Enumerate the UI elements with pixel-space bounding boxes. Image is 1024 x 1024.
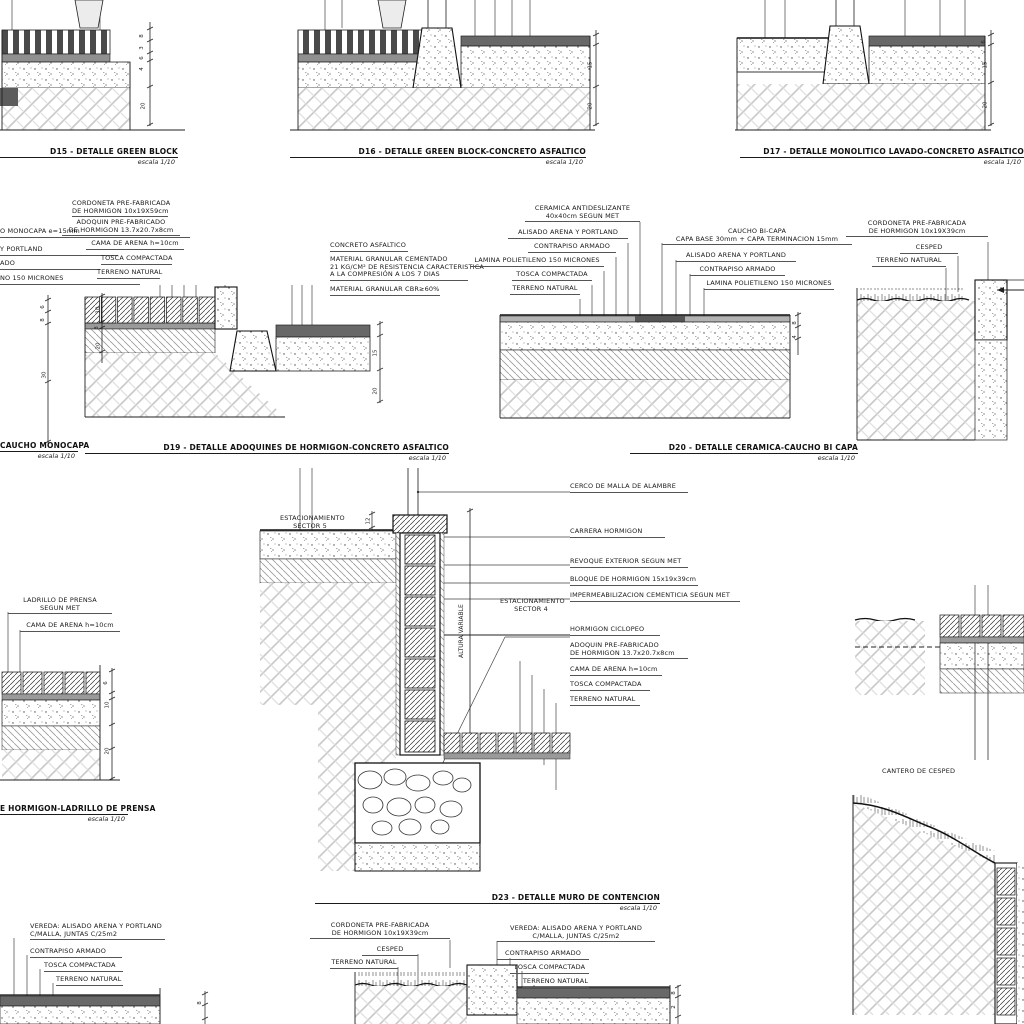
d20-label-contrapiso-izq: CONTRAPISO ARMADO	[528, 243, 616, 253]
d19-label-concreto-asfaltico: CONCRETO ASFALTICO	[330, 242, 408, 252]
detail-scale: escala 1/10	[0, 815, 128, 823]
label-line: SEGUN MET	[8, 605, 112, 613]
d16-title-block: D16 - DETALLE GREEN BLOCK-CONCRETO ASFAL…	[290, 147, 586, 166]
detail-scale: escala 1/10	[740, 158, 1024, 166]
label-line: DE HORMIGON 10x19X59cm	[72, 208, 168, 216]
d18-label-armado: ADO	[0, 260, 100, 270]
label-line: 40x40cm SEGUN MET	[525, 213, 640, 221]
vereda-centro-drawing	[280, 940, 700, 1024]
label-line: C/MALLA, JUNTAS C/25m2	[497, 933, 655, 941]
d15-drawing	[0, 0, 190, 140]
vc-label-cordoneta: CORDONETA PRE-FABRICADA DE HORMIGON 10x1…	[310, 922, 450, 939]
construction-details-sheet: 8 3 6 4 20 D15 - DETALLE GREEN BLOCK esc…	[0, 0, 1024, 1024]
detail-title: E HORMIGON-LADRILLO DE PRENSA	[0, 804, 128, 815]
d23-label-terreno: TERRENO NATURAL	[570, 696, 640, 706]
d23-label-tosca: TOSCA COMPACTADA	[570, 681, 650, 691]
detail-scale: escala 1/10	[0, 452, 78, 460]
d23-label-adoquin: ADOQUIN PRE-FABRICADO DE HORMIGON 13.7x2…	[570, 642, 688, 659]
detail-title: D20 - DETALLE CERAMICA-CAUCHO BI CAPA	[630, 443, 858, 454]
dim-label: 8	[40, 318, 46, 322]
dim-label: 4	[792, 335, 798, 339]
dim-label: 20	[96, 343, 102, 350]
d23-label-sector4: ESTACIONAMIENTO SECTOR 4	[500, 598, 562, 613]
vc-label-terreno2: TERRENO NATURAL	[522, 978, 589, 988]
label-line: CAPA BASE 30mm + CAPA TERMINACION 15mm	[662, 236, 852, 244]
d23-label-ciclopeo: HORMIGON CICLOPEO	[570, 626, 660, 636]
d17-title-block: D17 - DETALLE MONOLITICO LAVADO-CONCRETO…	[740, 147, 1024, 166]
vi-label-contrapiso: CONTRAPISO ARMADO	[30, 948, 122, 958]
d23-label-cama: CAMA DE ARENA h=10cm	[570, 666, 662, 676]
dim-label: 30	[42, 372, 48, 379]
detail-title: CAUCHO MONOCAPA	[0, 441, 78, 452]
detail-title: D16 - DETALLE GREEN BLOCK-CONCRETO ASFAL…	[290, 147, 586, 158]
dim-label: 20	[983, 102, 989, 109]
dim-label: 20	[373, 388, 379, 395]
dim-label: 6	[981, 40, 987, 44]
dim-label: 8	[197, 1001, 203, 1005]
detail-scale: escala 1/10	[0, 158, 178, 166]
dim-label: 15	[983, 62, 989, 69]
label-line: DE HORMIGON 13.7x20.7x8cm	[62, 227, 180, 235]
dim-label: 15	[373, 350, 379, 357]
d18-title-block: CAUCHO MONOCAPA escala 1/10	[0, 441, 78, 460]
dim-label: 6	[103, 681, 109, 685]
dim-label: 2	[671, 1005, 677, 1009]
d23-label-impermeabilizacion: IMPERMEABILIZACION CEMENTICIA SEGUN MET	[570, 592, 740, 602]
d20-drawing	[460, 220, 860, 435]
dim-label: 15	[588, 62, 594, 69]
d20-title-block: D20 - DETALLE CERAMICA-CAUCHO BI CAPA es…	[630, 443, 858, 462]
vi-label-terreno: TERRENO NATURAL	[56, 976, 123, 986]
borde-label-cesped: CESPED	[900, 244, 958, 254]
d15-title-block: D15 - DETALLE GREEN BLOCK escala 1/10	[0, 147, 178, 166]
bottom-right-fragment-drawing	[855, 585, 1024, 760]
d19-label-cama: CAMA DE ARENA h=10cm	[86, 240, 184, 250]
d20-label-lamina-izq: LAMINA POLIETILENO 150 MICRONES	[470, 257, 604, 267]
detail-scale: escala 1/10	[315, 904, 660, 912]
borde-label-cordoneta: CORDONETA PRE-FABRICADA DE HORMIGON 10x1…	[846, 220, 988, 237]
dim-label: 10	[96, 307, 102, 314]
d19-drawing	[40, 285, 480, 465]
cantero-drawing	[845, 755, 1024, 1024]
dim-label: 8	[139, 34, 145, 38]
d20-label-lamina-der: LAMINA POLIETILENO 150 MICRONES	[704, 280, 834, 290]
vc-label-cesped: CESPED	[362, 946, 418, 956]
d23-label-carrera: CARRERA HORMIGON	[570, 528, 665, 538]
dim-label: 20	[105, 748, 111, 755]
dim-label: 3	[139, 46, 145, 50]
d20-label-contrapiso-der: CONTRAPISO ARMADO	[690, 266, 785, 276]
vc-label-contrapiso: CONTRAPISO ARMADO	[497, 950, 589, 960]
d19-label-terreno: TERRENO NATURAL	[97, 269, 160, 279]
d20-label-caucho-bicapa: CAUCHO BI-CAPA CAPA BASE 30mm + CAPA TER…	[662, 228, 852, 245]
vc-label-vereda: VEREDA: ALISADO ARENA Y PORTLAND C/MALLA…	[497, 925, 655, 942]
vc-label-tosca: TOSCA COMPACTADA	[510, 964, 589, 974]
borde-label-terreno: TERRENO NATURAL	[872, 257, 946, 267]
detail-scale: escala 1/10	[290, 158, 586, 166]
d19-label-adoquin: ADOQUIN PRE-FABRICADO DE HORMIGON 13.7x2…	[62, 219, 180, 236]
label-line: DE HORMIGON 10x19X39cm	[310, 930, 450, 938]
d23-label-revoque: REVOQUE EXTERIOR SEGUN MET	[570, 558, 688, 568]
d21-label-cama: CAMA DE ARENA h=10cm	[20, 622, 120, 632]
d20-label-alisado-izq: ALISADO ARENA Y PORTLAND	[508, 229, 628, 239]
d23-title-block: D23 - DETALLE MURO DE CONTENCION escala …	[315, 893, 660, 912]
detail-title: D17 - DETALLE MONOLITICO LAVADO-CONCRETO…	[740, 147, 1024, 158]
detail-title: D23 - DETALLE MURO DE CONTENCION	[315, 893, 660, 904]
label-line: SECTOR 4	[500, 606, 562, 614]
dim-label: 20	[588, 103, 594, 110]
d20-label-tosca: TOSCA COMPACTADA	[512, 271, 592, 281]
d19-title-block: D19 - DETALLE ADOQUINES DE HORMIGON-CONC…	[85, 443, 449, 462]
d23-label-cerco: CERCO DE MALLA DE ALAMBRE	[570, 483, 688, 493]
vi-label-vereda: VEREDA: ALISADO ARENA Y PORTLAND C/MALLA…	[30, 923, 165, 940]
dim-label: 8	[792, 321, 798, 325]
d19-label-material-granular-cementado: MATERIAL GRANULAR CEMENTADO 21 KG/CM² DE…	[330, 256, 468, 281]
d23-label-sector5: ESTACIONAMIENTO SECTOR 5	[280, 515, 340, 530]
d19-label-tosca: TOSCA COMPACTADA	[101, 255, 172, 265]
detail-scale: escala 1/10	[630, 454, 858, 462]
d17-drawing	[735, 0, 1024, 140]
d21-drawing	[0, 610, 230, 815]
d20-label-terreno: TERRENO NATURAL	[510, 285, 580, 295]
detail-title: D15 - DETALLE GREEN BLOCK	[0, 147, 178, 158]
dim-label: 20	[141, 103, 147, 110]
label-line: C/MALLA, JUNTAS C/25m2	[30, 931, 165, 939]
dim-label: 6	[40, 305, 46, 309]
dim-label: 10	[105, 702, 111, 709]
label-line: DE HORMIGON 13.7x20.7x8cm	[570, 650, 688, 658]
d20-label-ceramica: CERAMICA ANTIDESLIZANTE 40x40cm SEGUN ME…	[525, 205, 640, 222]
d23-label-bloque: BLOQUE DE HORMIGON 15x19x39cm	[570, 576, 698, 586]
dim-label: 6	[139, 56, 145, 60]
cantero-label: CANTERO DE CESPED	[882, 768, 955, 776]
label-line: SECTOR 5	[280, 523, 340, 531]
d19-label-material-granular-cbr: MATERIAL GRANULAR CBR≥60%	[330, 286, 440, 296]
d23-label-altura-variable: ALTURA VARIABLE	[458, 604, 465, 658]
dim-label: 8	[671, 991, 677, 995]
detail-scale: escala 1/10	[85, 454, 449, 462]
dim-label: 4	[139, 67, 145, 71]
dim-label: 12	[366, 518, 372, 525]
label-line: A LA COMPRESIÓN A LOS 7 DIAS	[330, 271, 468, 279]
d20-label-alisado-der: ALISADO ARENA Y PORTLAND	[676, 252, 796, 262]
vc-label-terreno: TERRENO NATURAL	[330, 959, 398, 969]
d21-label-ladrillo: LADRILLO DE PRENSA SEGUN MET	[8, 597, 112, 614]
d19-label-cordoneta: CORDONETA PRE-FABRICADA DE HORMIGON 10x1…	[72, 200, 168, 217]
d16-drawing	[290, 0, 600, 140]
vi-label-tosca: TOSCA COMPACTADA	[44, 962, 123, 972]
label-line: DE HORMIGON 10x19X39cm	[846, 228, 988, 236]
dim-label: 8	[94, 326, 100, 330]
d21-title-block: E HORMIGON-LADRILLO DE PRENSA escala 1/1…	[0, 804, 128, 823]
detail-title: D19 - DETALLE ADOQUINES DE HORMIGON-CONC…	[85, 443, 449, 454]
